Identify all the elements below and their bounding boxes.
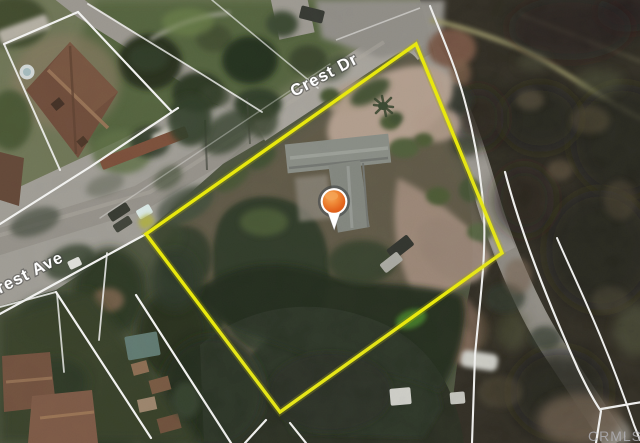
svg-text:CRMLS: CRMLS: [588, 428, 640, 443]
